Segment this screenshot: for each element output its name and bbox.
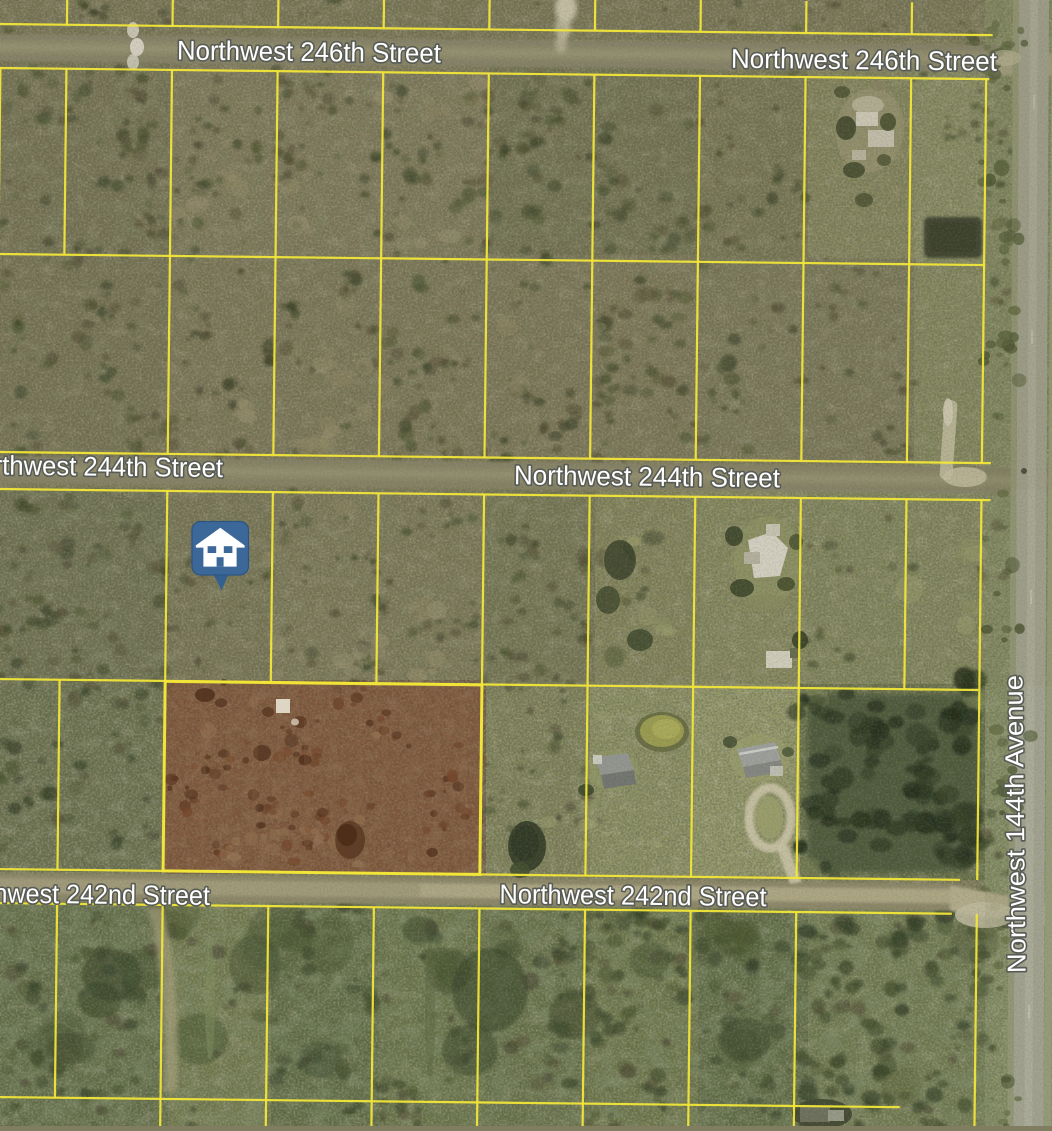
svg-text:Northwest 242nd Street: Northwest 242nd Street xyxy=(0,878,211,911)
svg-text:Northwest 244th Street: Northwest 244th Street xyxy=(0,450,224,483)
svg-text:Northwest 244th Street: Northwest 244th Street xyxy=(514,460,781,493)
svg-text:Northwest 242nd Street: Northwest 242nd Street xyxy=(499,879,767,912)
svg-text:Northwest 246th Street: Northwest 246th Street xyxy=(177,35,442,68)
svg-text:Northwest 144th Avenue: Northwest 144th Avenue xyxy=(998,675,1031,973)
svg-text:Northwest 246th Street: Northwest 246th Street xyxy=(731,44,998,77)
